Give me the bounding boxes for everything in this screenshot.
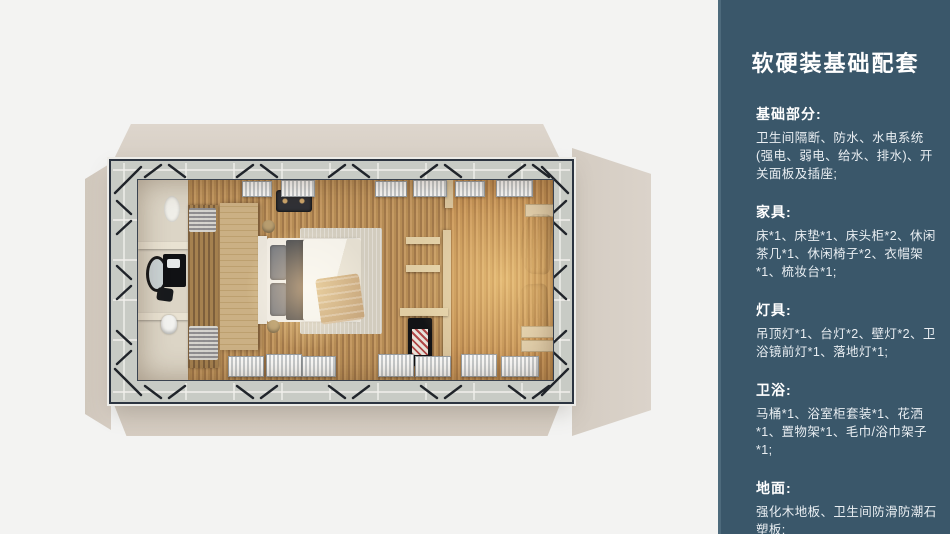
section-furniture: 家具: 床*1、床垫*1、床头柜*2、休闲茶几*1、休闲椅子*2、衣帽架*1、梳… (756, 202, 937, 281)
lounger-stack (242, 181, 272, 197)
lounger-stack (281, 180, 315, 197)
window-bench (521, 326, 553, 338)
towel-rack (189, 326, 218, 360)
section-basics: 基础部分: 卫生间隔断、防水、水电系统(强电、弱电、给水、排水)、开关面板及插座… (756, 104, 937, 183)
steel-glass-frame (111, 161, 572, 402)
section-heading: 灯具: (756, 300, 937, 320)
towel-rack (189, 208, 216, 232)
bed-headboard (258, 236, 267, 324)
section-body: 强化木地板、卫生间防滑防潮石塑板; (756, 503, 937, 534)
lounger-stack (413, 180, 447, 197)
section-body: 吊顶灯*1、台灯*2、壁灯*2、卫浴镜前灯*1、落地灯*1; (756, 325, 937, 361)
bedside-stool (267, 320, 280, 333)
section-body: 马桶*1、浴室柜套装*1、花洒*1、置物架*1、毛巾/浴巾架子*1; (756, 405, 937, 459)
section-heading: 家具: (756, 202, 937, 222)
lounger-stack (501, 356, 539, 377)
shelf-upright (443, 230, 451, 370)
section-bathroom: 卫浴: 马桶*1、浴室柜套装*1、花洒*1、置物架*1、毛巾/浴巾架子*1; (756, 380, 937, 459)
section-heading: 地面: (756, 478, 937, 498)
lounger-stack (375, 181, 407, 197)
room-interior (138, 180, 553, 380)
bathroom-sink (164, 196, 180, 222)
slide-canvas: 软硬装基础配套 基础部分: 卫生间隔断、防水、水电系统(强电、弱电、给水、排水)… (0, 0, 950, 534)
info-sidebar: 软硬装基础配套 基础部分: 卫生间隔断、防水、水电系统(强电、弱电、给水、排水)… (718, 0, 950, 534)
floorplan-render (85, 124, 651, 438)
throw-blanket (315, 273, 365, 325)
pillow (270, 245, 287, 280)
page-title: 软硬装基础配套 (729, 46, 942, 78)
curtain (519, 213, 552, 274)
section-list: 基础部分: 卫生间隔断、防水、水电系统(强电、弱电、给水、排水)、开关面板及插座… (721, 78, 950, 534)
pillow (270, 283, 287, 316)
left-fold-panel (85, 163, 111, 430)
section-body: 床*1、床垫*1、床头柜*2、休闲茶几*1、休闲椅子*2、衣帽架*1、梳妆台*1… (756, 227, 937, 281)
lounger-stack (415, 356, 451, 377)
window-bench (521, 340, 553, 352)
section-heading: 卫浴: (756, 380, 937, 400)
lounger-stack (455, 181, 485, 197)
shelf-board (406, 237, 440, 244)
section-lighting: 灯具: 吊顶灯*1、台灯*2、壁灯*2、卫浴镜前灯*1、落地灯*1; (756, 300, 937, 361)
top-fold-panel (113, 124, 561, 161)
vanity-basin (167, 259, 180, 268)
lounger-stack (496, 180, 533, 197)
partition-shelf (138, 242, 188, 249)
bottom-fold-panel (113, 402, 561, 436)
lounger-stack (302, 356, 336, 377)
bedside-stool (262, 220, 275, 233)
lounger-stack (266, 354, 302, 377)
lounger-stack (461, 354, 497, 377)
section-body: 卫生间隔断、防水、水电系统(强电、弱电、给水、排水)、开关面板及插座; (756, 129, 937, 183)
section-heading: 基础部分: (756, 104, 937, 124)
wardrobe (220, 203, 258, 350)
section-flooring: 地面: 强化木地板、卫生间防滑防潮石塑板; (756, 478, 937, 534)
right-fold-panel (572, 148, 651, 436)
minibar-door (412, 329, 428, 355)
vanity-stool (156, 287, 174, 302)
lounger-stack (228, 356, 264, 377)
toilet (161, 315, 177, 334)
shelf-board (400, 308, 448, 316)
lounger-stack (378, 354, 414, 377)
shelf-board (406, 265, 440, 272)
